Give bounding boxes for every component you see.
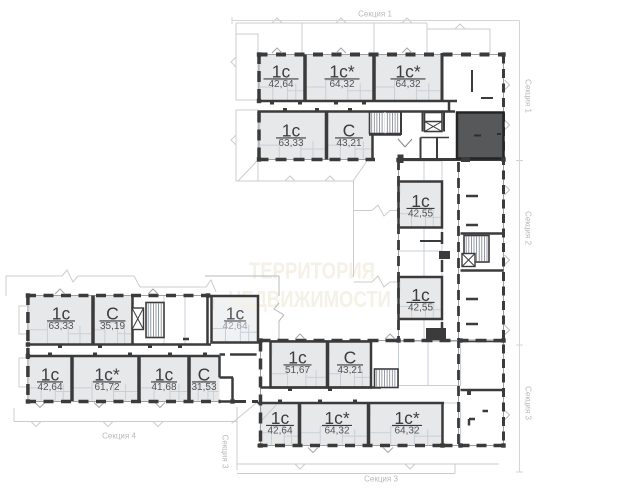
svg-text:64,32: 64,32: [329, 79, 354, 90]
svg-text:41,68: 41,68: [151, 382, 176, 393]
svg-text:64,32: 64,32: [395, 79, 420, 90]
svg-text:31,53: 31,53: [191, 382, 216, 393]
svg-text:42,64: 42,64: [37, 382, 62, 393]
svg-text:Секция 3: Секция 3: [364, 475, 398, 484]
svg-text:63,33: 63,33: [48, 321, 73, 332]
svg-text:51,67: 51,67: [285, 365, 310, 376]
svg-text:42,55: 42,55: [408, 208, 433, 219]
svg-text:Секция 2: Секция 2: [524, 211, 533, 245]
svg-text:42,64: 42,64: [268, 79, 293, 90]
svg-text:35,19: 35,19: [100, 321, 125, 332]
svg-text:43,21: 43,21: [336, 138, 361, 149]
svg-text:42,64: 42,64: [267, 425, 292, 436]
svg-text:Секция 4: Секция 4: [102, 432, 136, 441]
svg-text:42,64: 42,64: [222, 321, 247, 332]
svg-text:Секция 1: Секция 1: [524, 79, 533, 113]
svg-text:42,55: 42,55: [408, 302, 433, 313]
svg-text:Секция 3: Секция 3: [524, 386, 533, 420]
svg-text:НЕДВИЖИМОСТИ: НЕДВИЖИМОСТИ: [228, 286, 391, 312]
svg-text:ТЕРРИТОРИЯ: ТЕРРИТОРИЯ: [249, 258, 375, 284]
svg-text:64,32: 64,32: [394, 425, 419, 436]
svg-text:Секция 3: Секция 3: [221, 435, 230, 469]
svg-text:61,72: 61,72: [94, 382, 119, 393]
svg-text:63,33: 63,33: [278, 138, 303, 149]
svg-text:43,21: 43,21: [337, 365, 362, 376]
svg-text:64,32: 64,32: [324, 425, 349, 436]
svg-text:Секция 1: Секция 1: [358, 10, 392, 19]
